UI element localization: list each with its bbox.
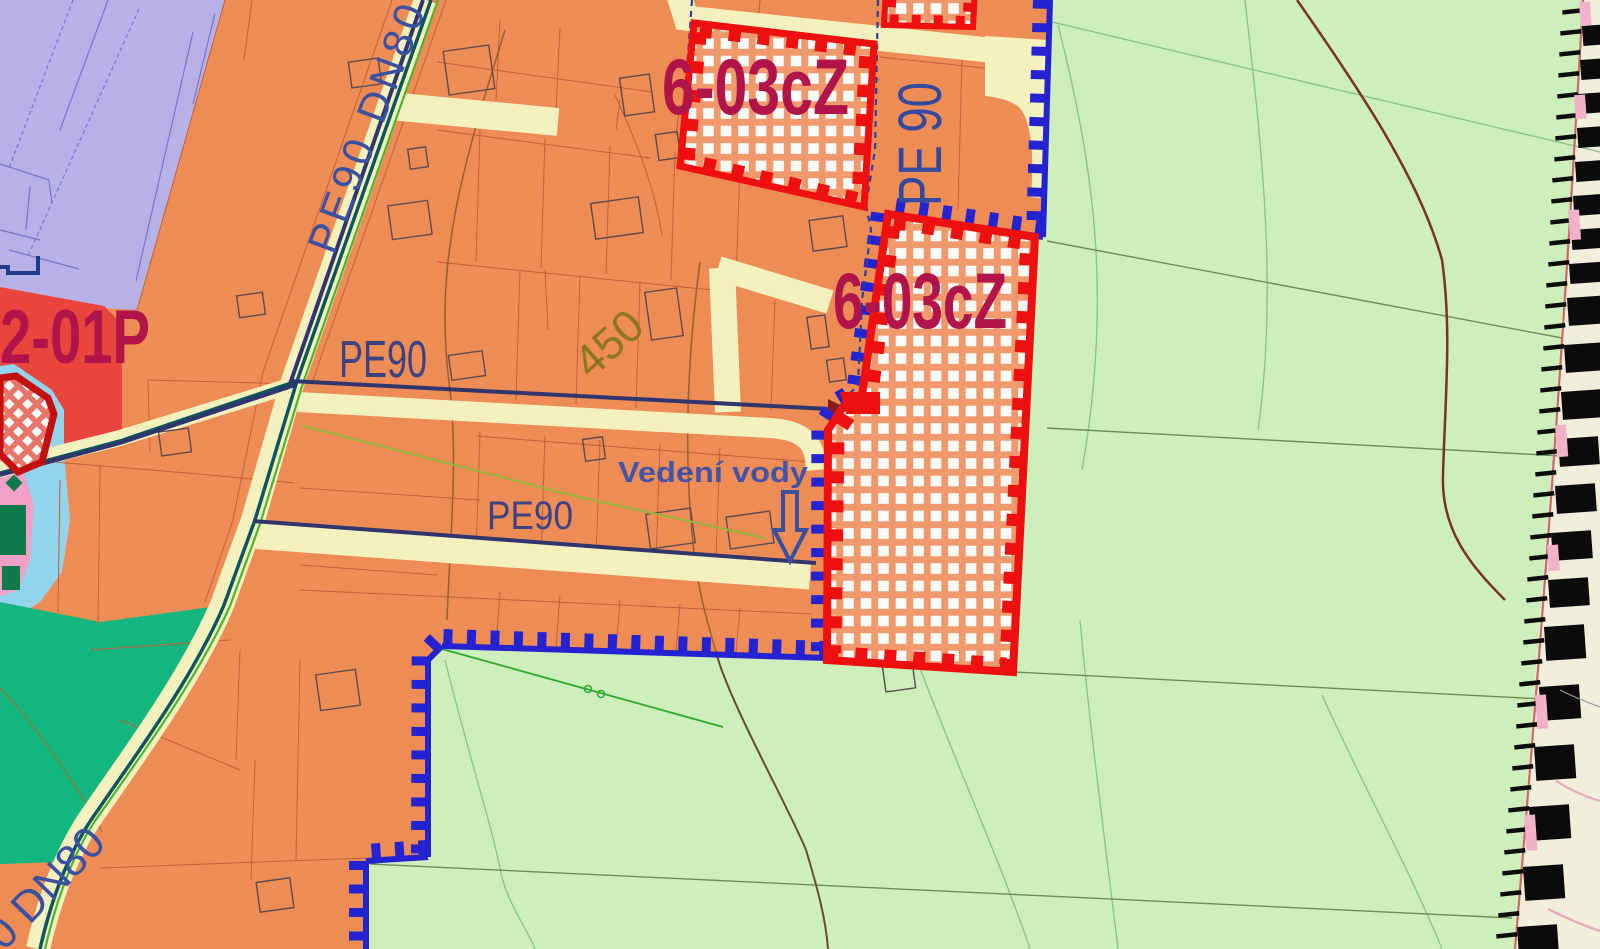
svg-text:2-01P: 2-01P xyxy=(0,295,150,380)
svg-text:6-03cZ: 6-03cZ xyxy=(833,256,1007,345)
svg-text:PE90: PE90 xyxy=(487,494,573,538)
svg-text:Vedení vody: Vedení vody xyxy=(618,457,808,489)
svg-text:PE 90: PE 90 xyxy=(886,82,954,206)
svg-text:PE90: PE90 xyxy=(339,331,427,389)
svg-text:6-03cZ: 6-03cZ xyxy=(662,42,849,131)
